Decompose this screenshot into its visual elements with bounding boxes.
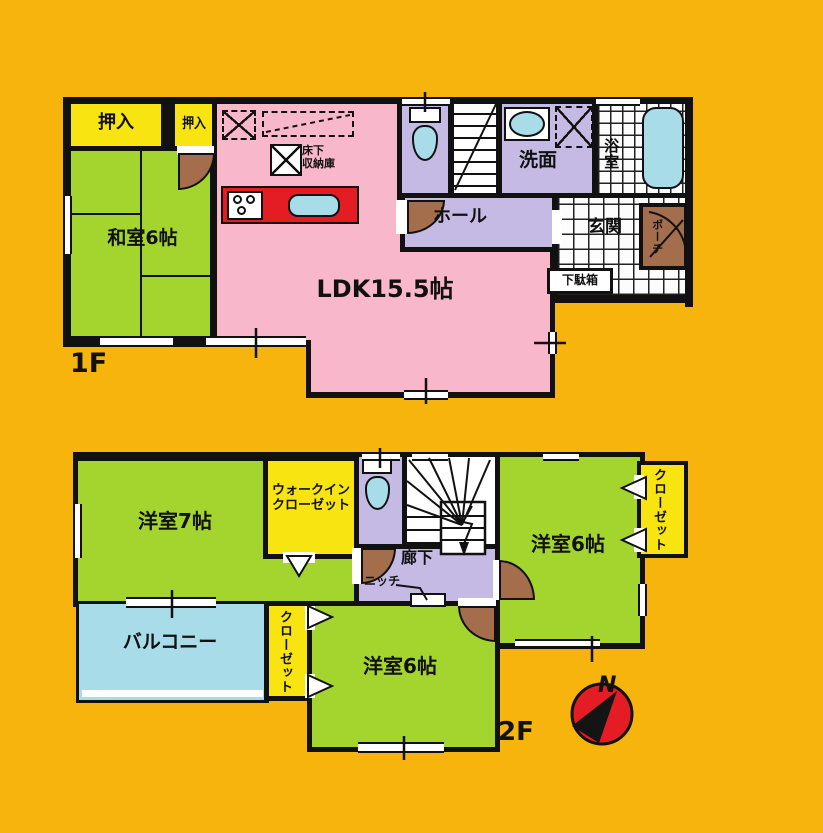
porch-label: ポーチ: [650, 210, 663, 264]
door-opening: [634, 528, 644, 552]
washroom-label: 洗面: [508, 150, 568, 172]
toilet-tank-icon: [409, 107, 441, 123]
burner-icon: [237, 206, 246, 215]
burner-icon: [233, 195, 242, 204]
balcony-edge: [82, 690, 263, 697]
western6-bottom-label: 洋室6帖: [335, 655, 465, 678]
underfloor-storage-label: 床下 収納庫: [302, 145, 360, 170]
window: [404, 390, 448, 400]
niche-label: ニッチ: [358, 575, 406, 589]
niche-box: [410, 593, 446, 607]
window: [73, 504, 82, 558]
shoe-cabinet-label: 下駄箱: [562, 274, 598, 288]
ldk-label: LDK15.5帖: [305, 276, 465, 304]
cupboard-space-icon: [262, 111, 354, 137]
window: [412, 452, 448, 461]
kitchen-sink-icon: [288, 194, 340, 217]
compass-needle-icon: [572, 691, 617, 743]
window: [358, 742, 444, 753]
toilet-tank-icon: [362, 459, 392, 474]
floorplan-canvas: 下駄箱 押入 押入 和室6帖 LDK15.5帖 床下 収納庫 ホール 洗面 浴室…: [0, 0, 823, 833]
stove-icon: [227, 191, 263, 220]
closet-bottom-label: クローゼット: [276, 610, 291, 694]
hall-label: ホール: [420, 207, 500, 228]
floor2-label: 2F: [498, 718, 558, 748]
window-sliding: [126, 597, 216, 608]
refrigerator-space-icon: [222, 110, 256, 140]
window: [362, 452, 400, 461]
door-opening: [634, 475, 644, 499]
window: [596, 97, 640, 106]
balcony-label: バルコニー: [100, 632, 240, 654]
window: [402, 97, 450, 106]
washbasin-icon: [509, 111, 545, 137]
closet-label: 押入: [175, 116, 212, 132]
door-opening: [552, 210, 562, 244]
compass-north-label: N: [598, 673, 616, 698]
closet-label: 押入: [78, 113, 154, 134]
shoe-cabinet-box: 下駄箱: [547, 268, 613, 294]
washing-machine-icon: [555, 106, 593, 148]
compass-circle: [572, 684, 632, 744]
floor1-label: 1F: [70, 348, 130, 379]
window: [543, 452, 579, 461]
tatami-line: [140, 275, 211, 277]
underfloor-storage-icon: [270, 144, 302, 176]
washitsu-label: 和室6帖: [75, 228, 210, 250]
window: [548, 332, 557, 354]
bathroom-label: 浴室: [602, 122, 619, 186]
closet-right-label: クローゼット: [650, 468, 665, 552]
window: [638, 584, 647, 616]
tatami-line: [71, 213, 141, 215]
western7-label: 洋室7帖: [105, 510, 245, 533]
walk-in-closet-label: ウォークイン クローゼット: [266, 484, 356, 514]
entrance-label: 玄関: [575, 218, 635, 238]
window: [515, 639, 600, 648]
room-stairs-1f: [449, 99, 501, 201]
burner-icon: [246, 195, 255, 204]
western6-right-label: 洋室6帖: [503, 533, 633, 556]
door-opening: [305, 674, 315, 698]
window: [100, 336, 173, 347]
door-opening: [283, 552, 315, 563]
window: [63, 196, 72, 254]
window-sliding: [206, 336, 306, 347]
corridor-label: 廊下: [382, 549, 452, 567]
door-opening: [305, 606, 315, 630]
compass: N: [572, 673, 632, 744]
bathtub-icon: [642, 107, 684, 189]
